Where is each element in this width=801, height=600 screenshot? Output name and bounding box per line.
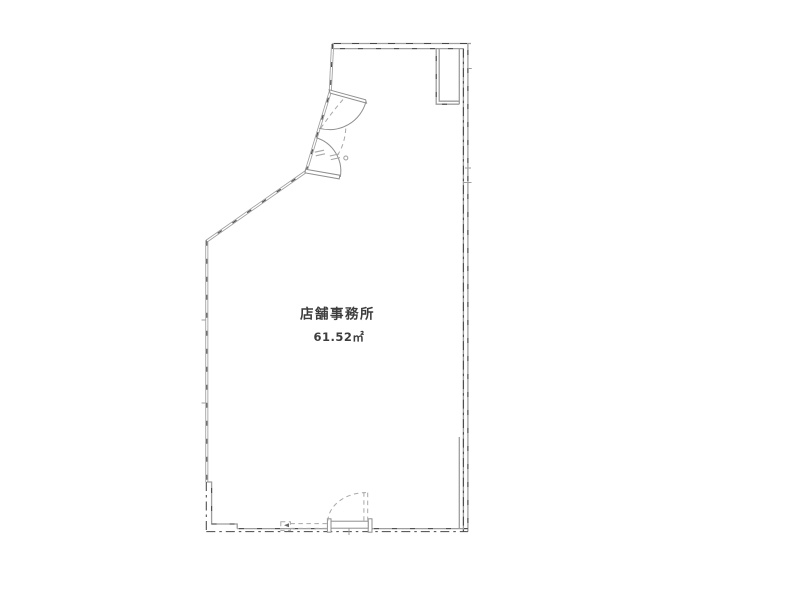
door-swing-arc-lower — [316, 138, 341, 177]
door-leaf-upper — [329, 90, 366, 103]
service-shaft — [436, 49, 459, 105]
door-swing-arc — [328, 493, 366, 521]
room-area-label: 61.52㎡ — [314, 330, 365, 344]
right-wall — [459, 44, 472, 532]
door-pivot-mark — [344, 156, 348, 160]
back-door — [281, 493, 372, 535]
bottom-wall — [206, 529, 468, 532]
bottom-left-step — [206, 482, 237, 532]
left-diagonal-wall — [202, 44, 333, 482]
perimeter-walls — [202, 44, 472, 532]
door-swing-guide-dashed — [337, 129, 346, 157]
door-leaf-lower — [305, 169, 340, 179]
entrance-double-door — [305, 90, 367, 179]
room-labels: 店舗事務所 61.52㎡ — [300, 306, 375, 345]
door-jamb-right — [368, 519, 372, 532]
floor-plan-svg: 店舗事務所 61.52㎡ — [0, 0, 801, 600]
room-name-label: 店舗事務所 — [300, 306, 375, 323]
floor-plan-page: 店舗事務所 61.52㎡ — [0, 0, 801, 600]
top-wall — [333, 44, 471, 49]
door-panel — [331, 521, 368, 528]
direction-arrow — [284, 523, 289, 527]
door-leaf-dashed — [364, 493, 368, 521]
door-glazing-marks — [315, 150, 340, 159]
